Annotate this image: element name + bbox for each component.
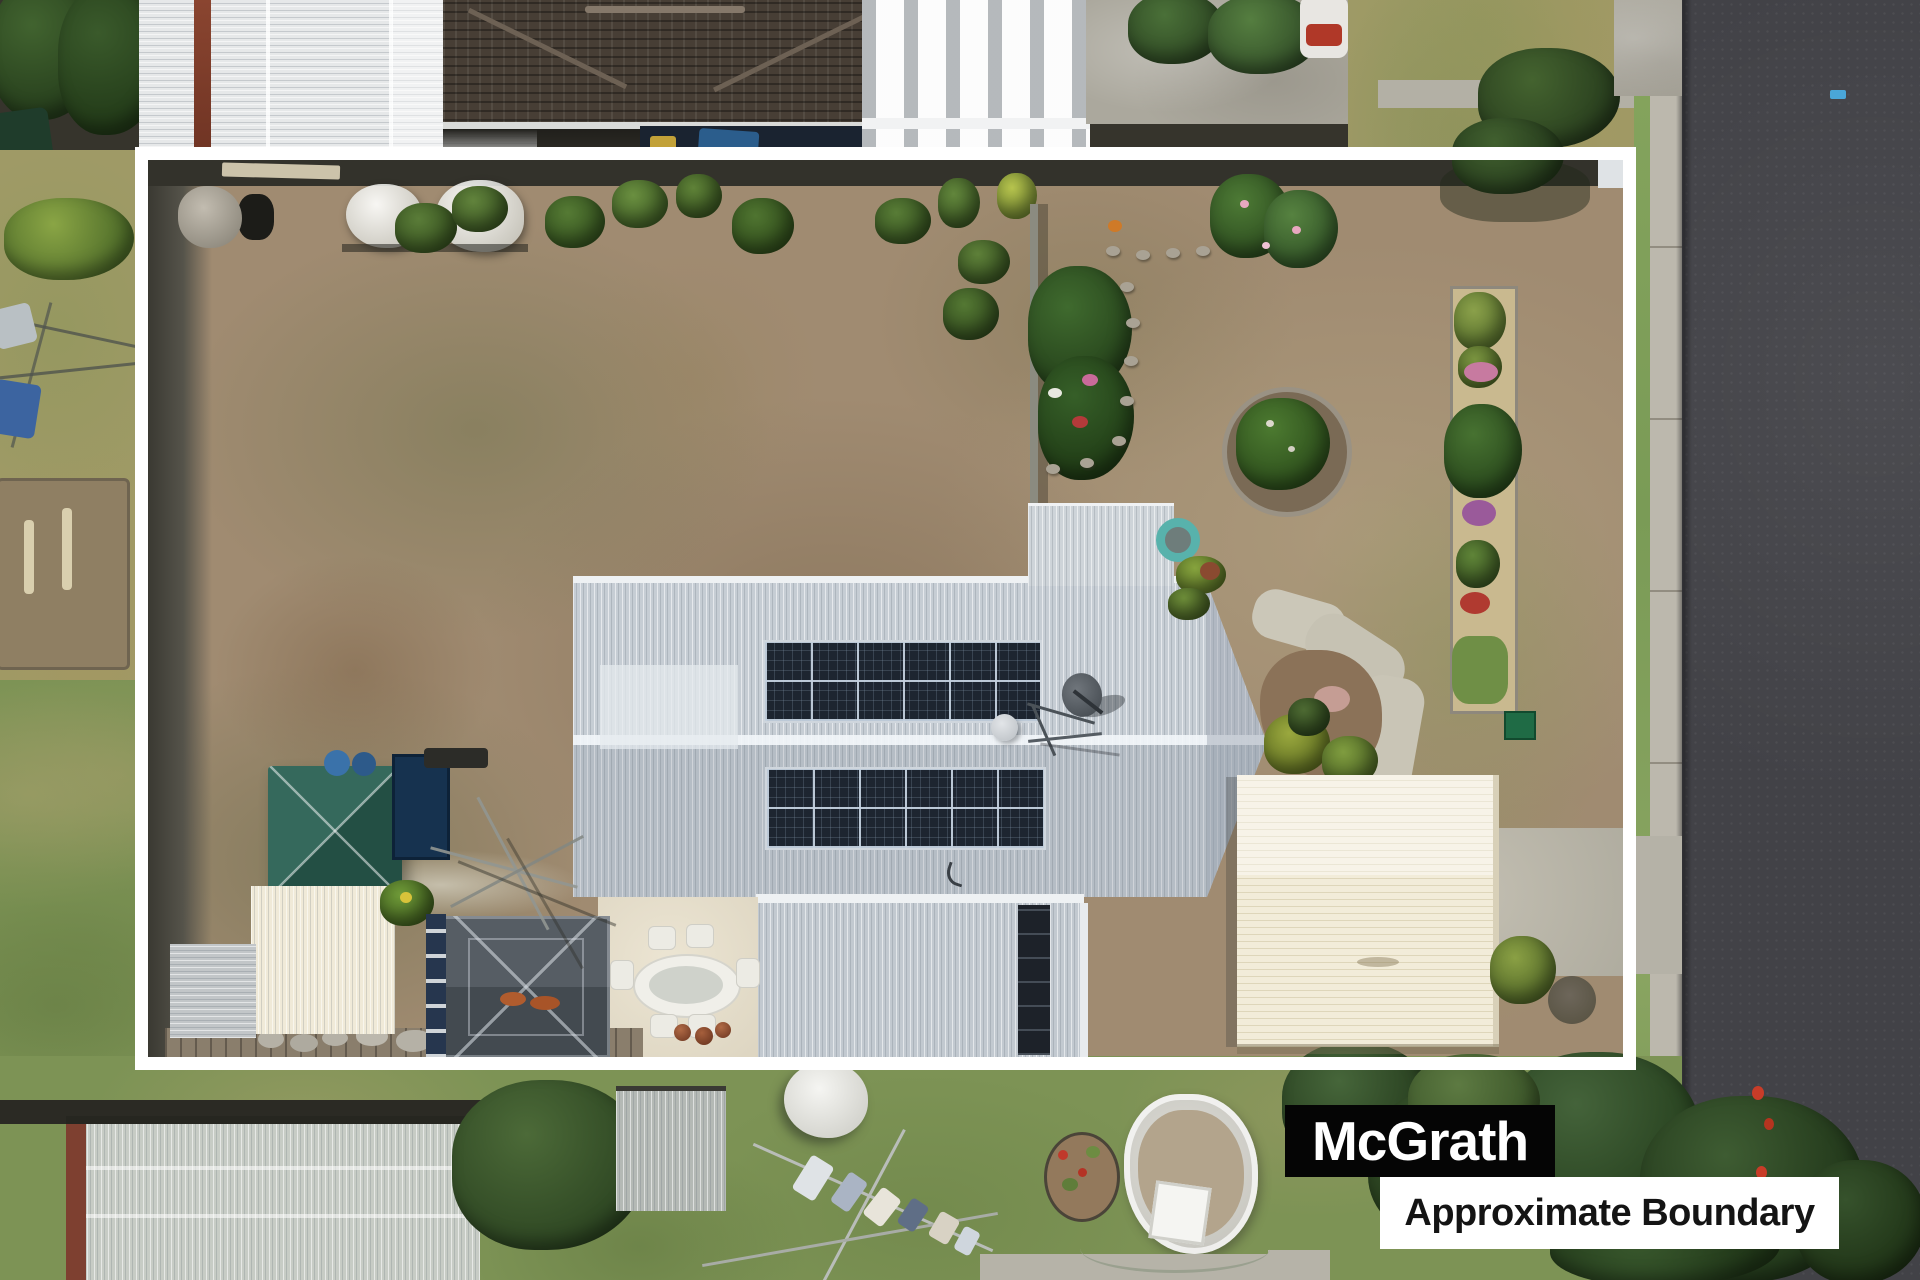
- driveway-crossing-verge: [1636, 836, 1682, 974]
- neighbour-roof-seam-2: [389, 0, 393, 160]
- rear-path-square: [1268, 1250, 1330, 1280]
- rear-roof-seam-1: [86, 1166, 480, 1170]
- caption-badge: Approximate Boundary: [1380, 1177, 1839, 1249]
- rear-flower-bed: [1044, 1132, 1120, 1222]
- brand-badge-label: McGrath: [1312, 1109, 1528, 1173]
- rear-flower-green-1: [1062, 1178, 1078, 1191]
- left-bed-plank-1: [24, 520, 34, 594]
- rear-roof-eave: [66, 1116, 480, 1124]
- tile-roof-ridge-cap: [585, 6, 745, 13]
- left-lawn-lower: [0, 680, 148, 1062]
- brand-badge: McGrath: [1285, 1105, 1555, 1177]
- red-bloom-2: [1764, 1118, 1774, 1130]
- driveway-crossing-top: [1614, 0, 1682, 96]
- left-bed-plank-2: [62, 508, 72, 590]
- rear-roof-rust-edge: [66, 1122, 86, 1280]
- garden-hose: [1080, 1224, 1270, 1273]
- aerial-photo: McGrath Approximate Boundary: [0, 0, 1920, 1280]
- rear-roof-seam-2: [86, 1214, 480, 1218]
- road: [1682, 0, 1920, 1280]
- neighbour-roof-rust-ridge: [194, 0, 211, 162]
- rear-neighbour-roof: [66, 1122, 480, 1280]
- white-dome-tent: [784, 1062, 868, 1138]
- road-paint-mark: [1830, 90, 1846, 99]
- white-roof-ridge-bar: [862, 118, 1090, 129]
- rear-shed-roof: [616, 1086, 726, 1211]
- neighbour-roof-brown-tile: [443, 0, 863, 130]
- approximate-boundary-outline: [135, 147, 1636, 1070]
- caption-badge-label: Approximate Boundary: [1404, 1192, 1814, 1235]
- rear-flower-red-1: [1058, 1150, 1068, 1160]
- parked-vehicle-red-part: [1306, 24, 1342, 46]
- neighbour-roof-seam-1: [266, 0, 270, 162]
- rear-flower-green-2: [1086, 1146, 1100, 1158]
- red-bloom-1: [1752, 1086, 1764, 1100]
- rear-flower-red-2: [1078, 1168, 1087, 1177]
